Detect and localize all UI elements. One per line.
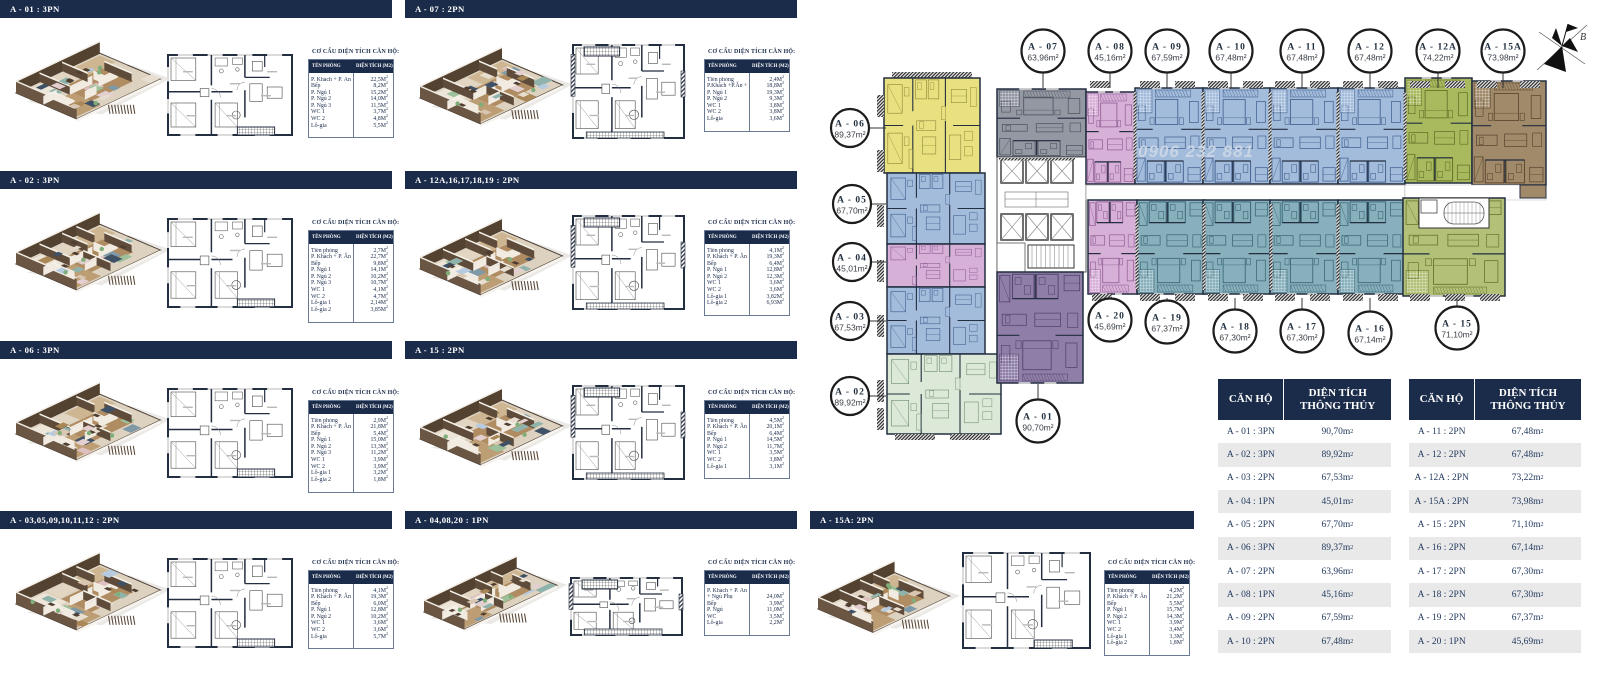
svg-text:A - 03: A - 03 (835, 313, 865, 323)
svg-text:67,30m²: 67,30m² (1286, 333, 1317, 343)
svg-text:0906 232 881: 0906 232 881 (1138, 142, 1254, 161)
svg-text:A - 17: A - 17 (1287, 323, 1317, 333)
svg-text:67,48m²: 67,48m² (1215, 53, 1246, 63)
svg-text:A - 16: A - 16 (1355, 325, 1385, 335)
svg-text:45,01m²: 45,01m² (836, 264, 867, 274)
svg-text:A - 01: A - 01 (1023, 413, 1053, 423)
svg-text:63,96m²: 63,96m² (1027, 53, 1058, 63)
svg-text:A - 15A: A - 15A (1484, 43, 1522, 53)
svg-text:67,59m²: 67,59m² (1151, 53, 1182, 63)
svg-text:67,37m²: 67,37m² (1151, 324, 1182, 334)
svg-text:45,16m²: 45,16m² (1094, 53, 1125, 63)
svg-text:89,37m²: 89,37m² (834, 130, 865, 140)
svg-text:A - 10: A - 10 (1216, 43, 1246, 53)
svg-text:A - 09: A - 09 (1152, 43, 1182, 53)
svg-text:B: B (1580, 32, 1586, 43)
svg-text:90,70m²: 90,70m² (1022, 423, 1053, 433)
svg-text:67,48m²: 67,48m² (1354, 53, 1385, 63)
svg-text:A - 08: A - 08 (1095, 43, 1125, 53)
svg-text:67,30m²: 67,30m² (1219, 333, 1250, 343)
svg-text:67,14m²: 67,14m² (1354, 335, 1385, 345)
svg-text:A - 05: A - 05 (837, 196, 867, 206)
svg-text:73,98m²: 73,98m² (1487, 53, 1518, 63)
svg-text:A - 07: A - 07 (1028, 43, 1058, 53)
svg-text:A - 02: A - 02 (835, 388, 865, 398)
svg-text:A - 12: A - 12 (1355, 43, 1385, 53)
svg-text:A - 15: A - 15 (1442, 320, 1472, 330)
svg-text:67,70m²: 67,70m² (836, 206, 867, 216)
svg-text:67,53m²: 67,53m² (834, 323, 865, 333)
svg-text:89,92m²: 89,92m² (834, 398, 865, 408)
svg-text:A - 19: A - 19 (1152, 314, 1182, 324)
svg-text:A - 20: A - 20 (1095, 312, 1125, 322)
svg-text:A - 18: A - 18 (1220, 323, 1250, 333)
svg-text:A - 12A: A - 12A (1419, 43, 1457, 53)
svg-text:45,69m²: 45,69m² (1094, 322, 1125, 332)
svg-text:74,22m²: 74,22m² (1422, 53, 1453, 63)
svg-text:A - 11: A - 11 (1287, 43, 1316, 53)
svg-text:71,10m²: 71,10m² (1441, 330, 1472, 340)
svg-text:67,48m²: 67,48m² (1286, 53, 1317, 63)
svg-text:A - 06: A - 06 (835, 120, 865, 130)
svg-text:A - 04: A - 04 (837, 254, 867, 264)
